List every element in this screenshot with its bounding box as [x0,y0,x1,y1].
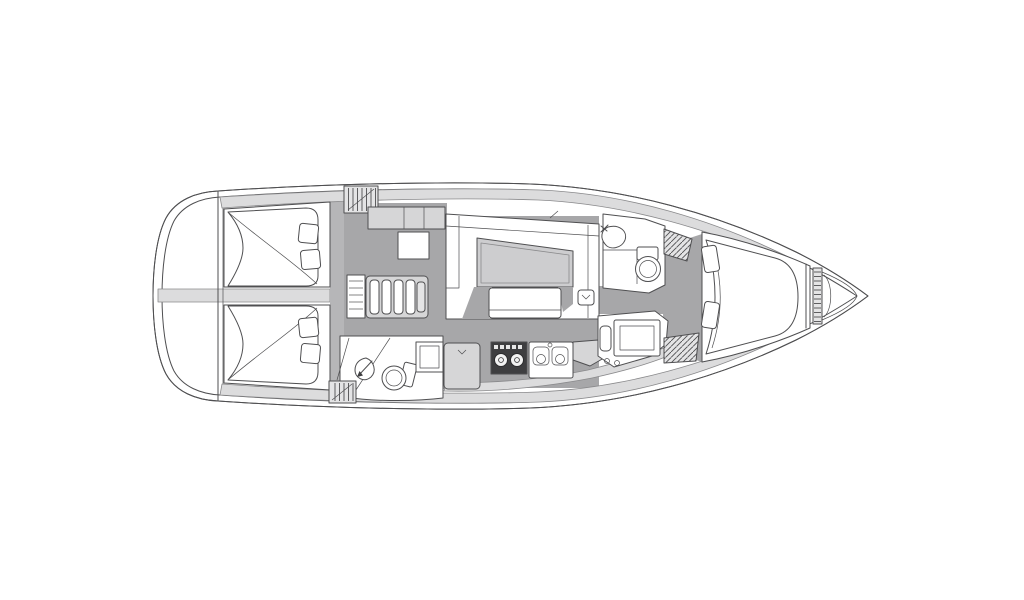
step-box [578,290,594,305]
pillow [298,317,319,338]
pillow [300,343,321,364]
nav-desk [614,320,660,356]
head-sink-counter [416,342,443,372]
aft-cabin-starboard [224,305,330,390]
aft-cabin-port [224,202,330,287]
stove [491,342,527,374]
yacht-floor-plan-diagram [0,0,1024,600]
floor-plan-canvas [0,0,1024,600]
nav-seat [600,326,611,351]
deck-hatch-aft-starboard [329,381,356,403]
salon-bench [489,288,561,318]
wardrobe [347,275,365,318]
deck-hatch-forward-starboard [664,333,699,363]
fridge [444,343,480,389]
companionway-stairs [366,276,428,318]
forward-head [601,214,665,293]
chart-table [398,232,429,259]
pillow [298,223,319,244]
pillow [300,249,321,270]
double-sink [529,342,573,378]
storage-cabinet [368,207,445,229]
toilet [636,247,661,282]
